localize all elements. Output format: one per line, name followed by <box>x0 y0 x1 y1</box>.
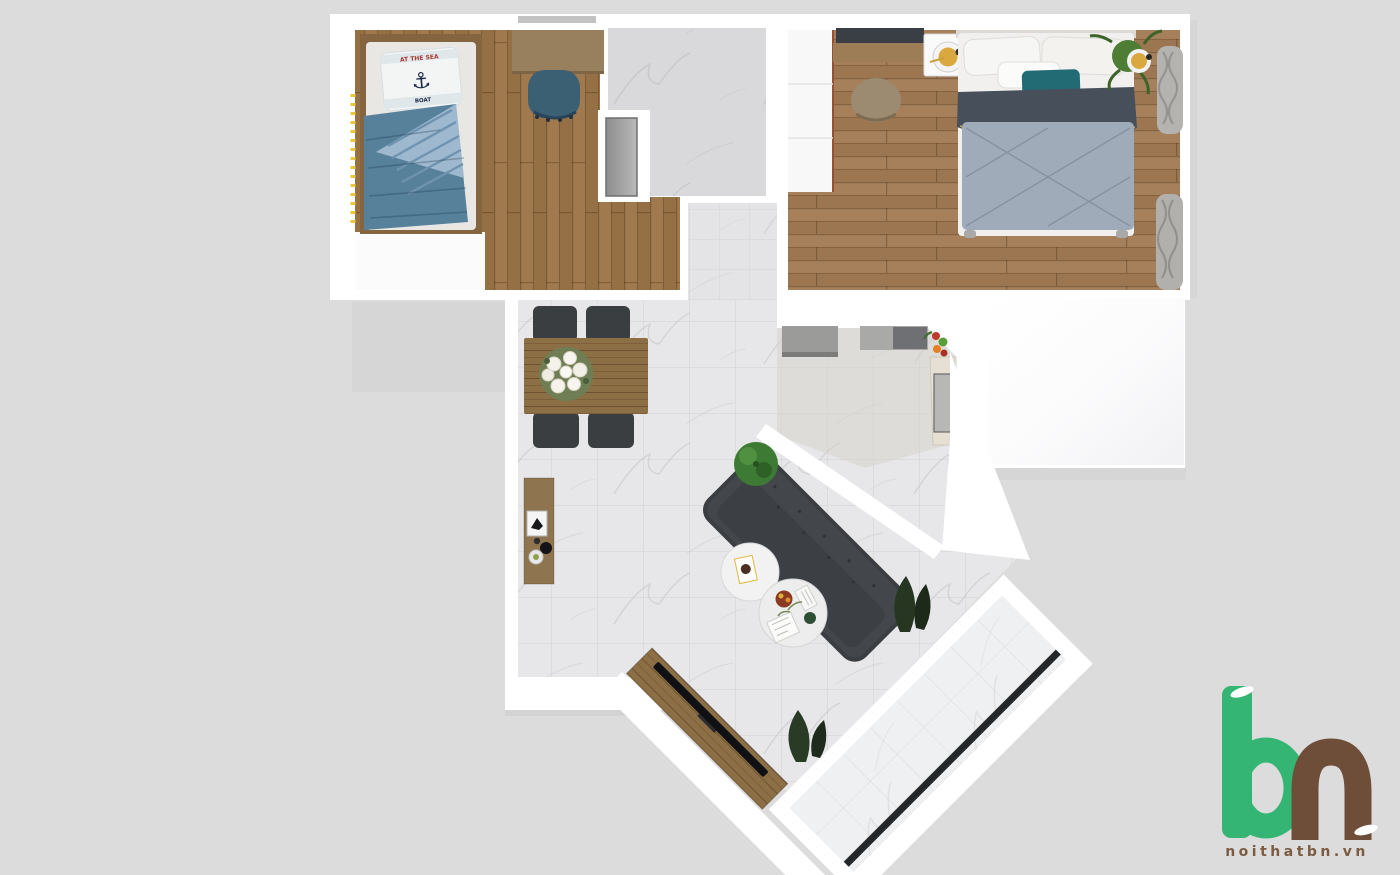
shadow-under-white-room <box>990 468 1186 480</box>
dining-chair <box>588 412 634 448</box>
chair-seat <box>528 70 580 118</box>
cooktop <box>893 327 927 349</box>
plant-by-sofa <box>734 442 778 486</box>
deco-sphere <box>540 542 552 554</box>
kids-desk-chair <box>528 70 580 122</box>
window-sill-strip <box>518 16 596 23</box>
shadow-right-of-plan <box>1190 20 1197 298</box>
flower-centerpiece <box>539 347 593 401</box>
bathroom-vanity-panel <box>606 118 637 196</box>
console-shelf <box>524 478 554 584</box>
anchor-icon: ⚓ <box>410 68 432 95</box>
single-bed: AT THE SEA ⚓ BOAT <box>360 34 482 234</box>
vanity-desk <box>833 43 925 62</box>
kitchen-counter-left <box>782 326 838 356</box>
anchor-pillow: AT THE SEA ⚓ BOAT <box>380 47 463 112</box>
quilted-duvet <box>962 122 1134 230</box>
floor-plan-render: AT THE SEA ⚓ BOAT <box>0 0 1400 875</box>
kids-wardrobe <box>355 232 485 290</box>
candle <box>804 612 816 624</box>
dining-chair <box>533 412 579 448</box>
shadow-under-left-block <box>352 302 518 392</box>
master-bedroom <box>788 28 1183 290</box>
kids-desk <box>512 30 604 74</box>
white-room <box>988 298 1184 465</box>
dining-chair <box>533 306 577 342</box>
coffee-table-large <box>759 579 827 647</box>
vanity-desk-top <box>836 28 924 43</box>
hallway <box>688 203 777 302</box>
bathroom <box>598 28 766 202</box>
logo-website-text: noithatbn.vn <box>1225 844 1369 860</box>
double-bed <box>956 30 1137 238</box>
deco-knob <box>534 538 540 544</box>
dining-chair <box>586 306 630 342</box>
master-wardrobe <box>788 30 833 192</box>
